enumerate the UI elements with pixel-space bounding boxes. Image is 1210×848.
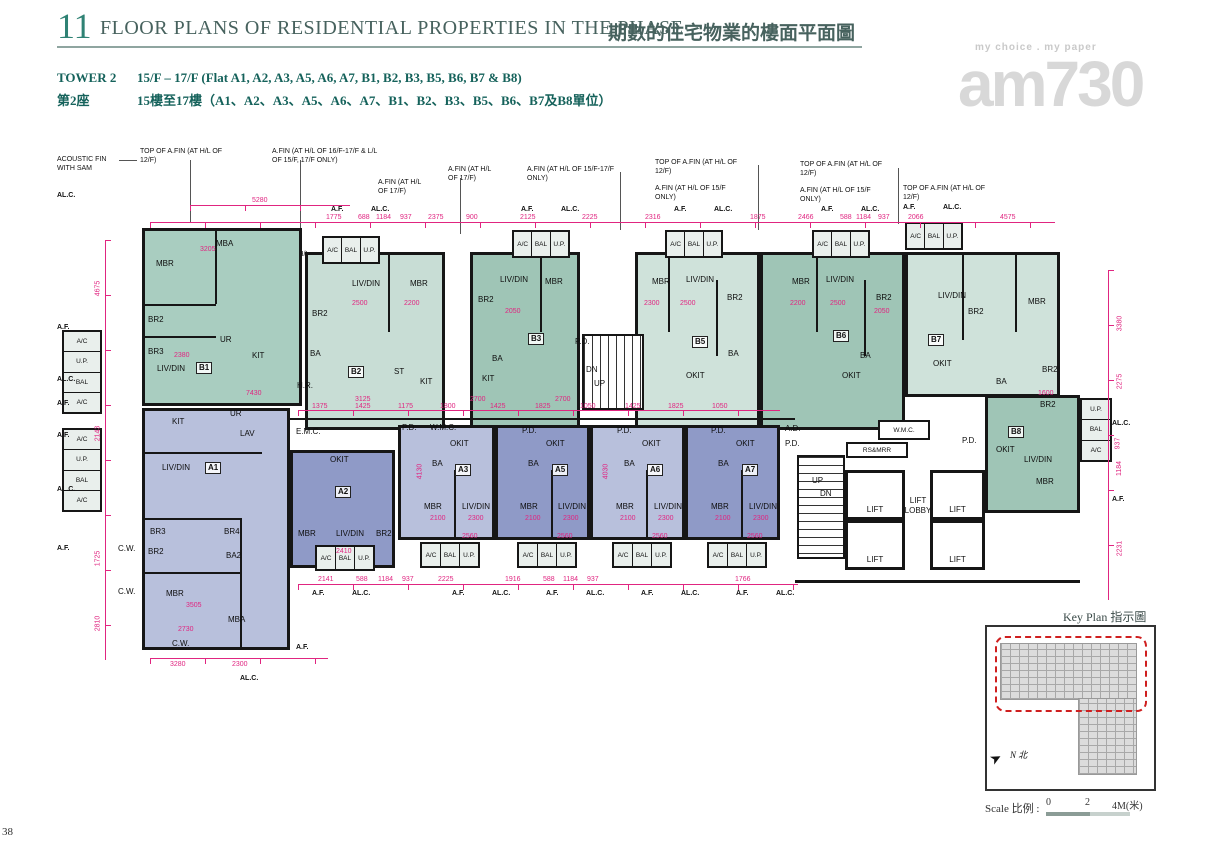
up-label: U.P.: [64, 450, 100, 470]
dim-label: 1766: [735, 576, 751, 583]
edge-label-alc: AL.C.: [352, 590, 370, 597]
tower-floors: 15/F – 17/F (Flat A1, A2, A3, A5, A6, A7…: [137, 70, 522, 86]
room-label-br3: BR3: [150, 528, 166, 536]
dim-label: 2300: [753, 515, 769, 522]
room-label-ba: BA: [492, 355, 503, 363]
edge-label-alc: AL.C.: [57, 192, 75, 199]
bal-label: BAL: [538, 544, 557, 566]
room-label-st: ST: [394, 368, 404, 376]
room-label-br4: BR4: [224, 528, 240, 536]
pod-b2-ac-bal-up: A/CBALU.P.: [322, 236, 380, 264]
dim-label: 2100: [715, 515, 731, 522]
room-label-livdin: LIV/DIN: [558, 503, 586, 511]
dim-label: 937: [878, 214, 890, 221]
room-label-pd: P.D.: [617, 427, 632, 435]
dim-label: 1184: [376, 214, 391, 221]
dim-label: 3380: [1116, 316, 1123, 332]
annotation-afin-17: A.FIN (AT H/L OF 17/F): [448, 165, 498, 183]
dim-label: 2125: [520, 214, 536, 221]
ac-label: A/C: [64, 332, 100, 352]
room-label-livdin: LIV/DIN: [749, 503, 777, 511]
wall-segment: [551, 470, 553, 538]
dim-label: 2316: [645, 214, 661, 221]
dim-line-bottom: [298, 584, 798, 590]
lift-label: LIFT: [867, 555, 883, 564]
stair-up-label: UP: [594, 380, 605, 388]
dim-label: 4675: [94, 281, 101, 297]
room-label-br2: BR2: [148, 548, 164, 556]
annotation-afin-1517: A.FIN (AT H/L OF 15/F-17/F ONLY): [527, 165, 622, 183]
dim-label: 588: [543, 576, 555, 583]
dim-label: 2050: [505, 308, 521, 315]
room-label-kit: KIT: [482, 375, 494, 383]
pod-b3-ac-bal-up: A/CBALU.P.: [512, 230, 570, 258]
page-title-chinese: 期數的住宅物業的樓面平面圖: [608, 18, 855, 45]
unit-badge-b2: B2: [348, 366, 364, 378]
pod-b5-ac-bal-up: A/CBALU.P.: [665, 230, 723, 258]
room-label-mbr: MBR: [410, 280, 428, 288]
room-label-kit: KIT: [420, 378, 432, 386]
dim-label: 1184: [378, 576, 393, 583]
unit-badge-a7: A7: [742, 464, 758, 476]
annotation-afin-17: A.FIN (AT H/L OF 17/F): [378, 178, 428, 196]
edge-label-af: A.F.: [674, 206, 686, 213]
annotation-top-afin: TOP OF A.FIN (AT H/L OF 12/F): [655, 158, 750, 176]
edge-label-alc: AL.C.: [586, 590, 604, 597]
room-label-mbr: MBR: [545, 278, 563, 286]
room-label-ba: BA: [996, 378, 1007, 386]
room-label-br2: BR2: [312, 310, 328, 318]
leader-line: [898, 168, 899, 224]
section-number: 11: [57, 5, 92, 47]
edge-label-alc: AL.C.: [714, 206, 732, 213]
wall-segment: [388, 252, 390, 332]
tower-floors-chinese: 15樓至17樓（A1、A2、A3、A5、A6、A7、B1、B2、B3、B5、B6…: [137, 90, 612, 109]
room-label-mbr: MBR: [1028, 298, 1046, 306]
dim-label: 2300: [658, 515, 674, 522]
edge-label-alc: AL.C.: [943, 204, 961, 211]
pod-a5-ac-bal-up: A/CBALU.P.: [517, 542, 577, 568]
edge-label-alc: AL.C.: [561, 206, 579, 213]
scale-tick-4: 4M(米): [1112, 797, 1143, 812]
dim-label: 937: [402, 576, 414, 583]
dim-label: 1184: [856, 214, 871, 221]
dim-label: 2375: [428, 214, 444, 221]
room-label-mbr: MBR: [520, 503, 538, 511]
dim-label: 3505: [186, 602, 202, 609]
dim-line-left: [105, 240, 111, 660]
dim-label: 3125: [355, 396, 371, 403]
room-label-br2: BR2: [376, 530, 392, 538]
lift-shaft: LIFT: [845, 470, 905, 520]
dim-label: 2231: [1116, 541, 1123, 557]
up-label: U.P.: [460, 544, 478, 566]
lift-label: LIFT: [867, 505, 883, 514]
dim-label: 588: [356, 576, 368, 583]
up-label: U.P.: [355, 547, 373, 569]
edge-label-af: A.F.: [57, 324, 69, 331]
room-label-okit: OKIT: [736, 440, 755, 448]
room-label-mbr: MBR: [652, 278, 670, 286]
dim-label: 2730: [178, 626, 194, 633]
dim-label: 2300: [232, 661, 248, 668]
edge-label-af: A.F.: [736, 590, 748, 597]
up-label: U.P.: [851, 232, 868, 256]
ac-label: A/C: [614, 544, 633, 566]
dim-label: 5280: [252, 197, 268, 204]
room-label-pd: P.D.: [575, 338, 590, 346]
unit-region-b1: [142, 228, 302, 406]
room-label-pd: P.D.: [785, 440, 800, 448]
edge-label-af: A.F.: [903, 204, 915, 211]
up-label: U.P.: [551, 232, 568, 256]
dim-label: 2066: [908, 214, 924, 221]
room-label-br3: BR3: [148, 348, 164, 356]
unit-badge-a2: A2: [335, 486, 351, 498]
dim-label: 937: [587, 576, 599, 583]
stair-dn-label: DN: [820, 490, 832, 498]
dim-line-corridor: [298, 410, 780, 416]
dim-label: 937: [400, 214, 412, 221]
dim-label: 2143: [94, 426, 101, 442]
room-label-livdin: LIV/DIN: [352, 280, 380, 288]
dim-label: 2100: [430, 515, 446, 522]
room-label-br2: BR2: [876, 294, 892, 302]
up-label: U.P.: [64, 352, 100, 372]
room-label-br2: BR2: [478, 296, 494, 304]
dim-line-top: [150, 222, 1055, 228]
dim-label: 2500: [352, 300, 368, 307]
wall-segment: [142, 304, 216, 306]
dim-label: 1184: [1116, 461, 1123, 476]
room-label-okit: OKIT: [933, 360, 952, 368]
bal-label: BAL: [532, 232, 550, 256]
room-label-mbr: MBR: [792, 278, 810, 286]
room-label-mba: MBA: [228, 616, 245, 624]
wall-segment: [290, 418, 795, 420]
room-label-br2: BR2: [968, 308, 984, 316]
dim-label: 1425: [355, 403, 371, 410]
dim-label: 1916: [505, 576, 521, 583]
bal-label: BAL: [1082, 420, 1110, 440]
room-label-ba: BA: [728, 350, 739, 358]
annotation-top-afin: TOP OF A.FIN (AT H/L OF 12/F): [903, 184, 998, 202]
tower-name-chinese: 第2座: [57, 90, 90, 109]
annotation-afin-1617: A.FIN (AT H/L OF 16/F-17/F & L/L OF 15/F…: [272, 147, 388, 165]
dim-label: 1725: [94, 551, 101, 567]
dim-label: 3280: [170, 661, 186, 668]
edge-label-alc: AL.C.: [57, 486, 75, 493]
room-label-ba: BA: [528, 460, 539, 468]
bal-label: BAL: [633, 544, 652, 566]
lift-shaft: LIFT: [930, 520, 985, 570]
unit-region-b7: [905, 252, 1060, 397]
wall-segment: [716, 280, 718, 356]
ac-label: A/C: [814, 232, 832, 256]
room-label-mbr: MBR: [424, 503, 442, 511]
page-title: FLOOR PLANS OF RESIDENTIAL PROPERTIES IN…: [100, 17, 683, 40]
room-label-lav: LAV: [240, 430, 255, 438]
dim-label: 2500: [830, 300, 846, 307]
room-label-okit: OKIT: [330, 456, 349, 464]
pod-a3-ac-bal-up: A/CBALU.P.: [420, 542, 480, 568]
header-rule: [57, 46, 862, 48]
room-label-livdin: LIV/DIN: [462, 503, 490, 511]
room-label-kit: KIT: [252, 352, 264, 360]
dim-label: 3205: [200, 246, 216, 253]
unit-region-b8: [985, 395, 1080, 513]
dim-label: 688: [358, 214, 370, 221]
dim-line-right: [1108, 270, 1114, 600]
dim-label: 2810: [94, 616, 101, 632]
room-label-livdin: LIV/DIN: [1024, 456, 1052, 464]
wall-segment: [668, 252, 670, 332]
dim-label: 1425: [625, 403, 641, 410]
lift-shaft: LIFT: [930, 470, 985, 520]
dim-label: 2050: [874, 308, 890, 315]
unit-badge-b1: B1: [196, 362, 212, 374]
room-label-ba2: BA2: [226, 552, 241, 560]
ac-label: A/C: [514, 232, 532, 256]
room-label-livdin: LIV/DIN: [654, 503, 682, 511]
wall-segment: [454, 470, 456, 538]
pod-a6-ac-bal-up: A/CBALU.P.: [612, 542, 672, 568]
unit-badge-b3: B3: [528, 333, 544, 345]
wall-segment: [240, 518, 242, 648]
dim-label: 2560: [462, 533, 478, 540]
unit-badge-a3: A3: [455, 464, 471, 476]
wall-segment: [795, 580, 1080, 583]
room-label-cw: C.W.: [172, 640, 189, 648]
dim-label: 1175: [398, 403, 413, 410]
room-label-mbr: MBR: [711, 503, 729, 511]
wmc-room: W.M.C.: [878, 420, 930, 440]
annotation-afin-15: A.FIN (AT H/L OF 15/F ONLY): [655, 184, 747, 202]
room-label-okit: OKIT: [996, 446, 1015, 454]
edge-label-af: A.F.: [296, 644, 308, 651]
dim-label: 2141: [318, 576, 334, 583]
bal-label: BAL: [342, 238, 360, 262]
bal-label: BAL: [441, 544, 460, 566]
dim-label: 2700: [470, 396, 486, 403]
dim-label: 1050: [580, 403, 596, 410]
room-label-br2: BR2: [1040, 401, 1056, 409]
dim-label: 2225: [438, 576, 454, 583]
room-label-pd: P.D.: [711, 427, 726, 435]
room-label-cw: C.W.: [118, 588, 135, 596]
wall-segment: [646, 470, 648, 538]
unit-badge-a1: A1: [205, 462, 221, 474]
dim-label: 2300: [468, 515, 484, 522]
lift-lobby-label: LIFT LOBBY: [900, 496, 936, 517]
edge-label-af: A.F.: [312, 590, 324, 597]
dim-label: 1184: [563, 576, 578, 583]
dim-label: 2225: [582, 214, 598, 221]
unit-region-a5: [495, 425, 590, 540]
dim-label: 900: [466, 214, 478, 221]
unit-region-a7: [685, 425, 780, 540]
room-label-mbr: MBR: [156, 260, 174, 268]
dim-label: 1825: [535, 403, 551, 410]
edge-label-alc: AL.C.: [1112, 420, 1130, 427]
unit-badge-b5: B5: [692, 336, 708, 348]
up-label: U.P.: [747, 544, 765, 566]
ac-label: A/C: [317, 547, 336, 569]
dim-label: 1375: [312, 403, 328, 410]
unit-badge-b6: B6: [833, 330, 849, 342]
edge-label-alc: AL.C.: [681, 590, 699, 597]
dim-label: 2410: [336, 548, 352, 555]
edge-label-alc: AL.C.: [57, 376, 75, 383]
keyplan-title: Key Plan 指示圖: [1063, 608, 1146, 625]
dim-label: 2700: [555, 396, 571, 403]
unit-badge-b8: B8: [1008, 426, 1024, 438]
dim-label: 2300: [563, 515, 579, 522]
room-label-livdin: LIV/DIN: [162, 464, 190, 472]
leader-line: [119, 160, 137, 161]
room-label-cw: C.W.: [118, 545, 135, 553]
room-label-br2: BR2: [727, 294, 743, 302]
wall-segment: [864, 280, 866, 356]
wall-segment: [540, 252, 542, 332]
room-label-kit: KIT: [172, 418, 184, 426]
up-label: U.P.: [557, 544, 575, 566]
room-label-mbr: MBR: [298, 530, 316, 538]
dim-label: 2560: [652, 533, 668, 540]
up-label: U.P.: [361, 238, 378, 262]
dim-label: 2100: [525, 515, 541, 522]
room-label-livdin: LIV/DIN: [500, 276, 528, 284]
wall-segment: [741, 470, 743, 538]
edge-label-af: A.F.: [57, 545, 69, 552]
watermark-logo: am730: [958, 52, 1142, 116]
room-label-mbr: MBR: [1036, 478, 1054, 486]
room-label-br2: BR2: [148, 316, 164, 324]
dim-label: 2380: [174, 352, 190, 359]
dim-label: 4030: [602, 464, 609, 480]
scale-label: Scale 比例 :: [985, 800, 1039, 816]
annotation-acoustic-fin: ACOUSTIC FIN WITH SAM: [57, 155, 119, 173]
stair-dn-label: DN: [586, 366, 598, 374]
room-label-livdin: LIV/DIN: [686, 276, 714, 284]
dim-label: 2560: [747, 533, 763, 540]
dim-label: 2560: [557, 533, 573, 540]
stair-region: [797, 455, 845, 559]
unit-badge-a5: A5: [552, 464, 568, 476]
unit-badge-a6: A6: [647, 464, 663, 476]
dim-label: 1775: [326, 214, 342, 221]
leader-line: [190, 160, 191, 222]
edge-label-af: A.F.: [57, 400, 69, 407]
dim-label: 588: [840, 214, 852, 221]
ac-label: A/C: [422, 544, 441, 566]
dim-label: 2300: [644, 300, 660, 307]
unit-badge-b7: B7: [928, 334, 944, 346]
dim-line: [190, 205, 350, 211]
room-label-ba: BA: [718, 460, 729, 468]
dim-label: 2200: [790, 300, 806, 307]
edge-label-alc: AL.C.: [240, 675, 258, 682]
dim-label: 937: [1114, 438, 1121, 450]
ac-label: A/C: [1082, 441, 1110, 460]
room-label-ba: BA: [310, 350, 321, 358]
room-label-livdin: LIV/DIN: [938, 292, 966, 300]
brochure-page: 11 FLOOR PLANS OF RESIDENTIAL PROPERTIES…: [0, 0, 1210, 848]
room-label-wmc: W.M.C.: [430, 424, 456, 432]
wall-segment: [1015, 252, 1017, 332]
room-label-ba: BA: [624, 460, 635, 468]
stair-up-label: UP: [812, 477, 823, 485]
keyplan-highlight-boundary: [995, 636, 1147, 712]
room-label-livdin: LIV/DIN: [336, 530, 364, 538]
edge-label-af: A.F.: [452, 590, 464, 597]
room-label-mbr: MBR: [166, 590, 184, 598]
lift-label: LIFT: [949, 505, 965, 514]
ac-label: A/C: [324, 238, 342, 262]
ac-label: A/C: [709, 544, 728, 566]
room-label-okit: OKIT: [546, 440, 565, 448]
edge-label-af: A.F.: [546, 590, 558, 597]
wall-segment: [142, 336, 216, 338]
scale-tick-2: 2: [1085, 797, 1090, 808]
dim-label: 1050: [712, 403, 728, 410]
edge-label-af: A.F.: [521, 206, 533, 213]
room-label-mbr: MBR: [616, 503, 634, 511]
edge-label-alc: AL.C.: [371, 206, 389, 213]
unit-region-a6: [590, 425, 685, 540]
wall-segment: [142, 452, 262, 454]
scale-tick-0: 0: [1046, 797, 1051, 808]
room-label-br2: BR2: [1042, 366, 1058, 374]
room-label-okit: OKIT: [450, 440, 469, 448]
dim-label: 2466: [798, 214, 814, 221]
lift-shaft: LIFT: [845, 520, 905, 570]
room-label-ba: BA: [432, 460, 443, 468]
up-label: U.P.: [704, 232, 721, 256]
edge-label-alc: AL.C.: [776, 590, 794, 597]
rsmrr-room: RS&MRR: [846, 442, 908, 458]
room-label-ba: BA: [860, 352, 871, 360]
room-label-okit: OKIT: [642, 440, 661, 448]
wall-segment: [816, 252, 818, 332]
annotation-top-afin: TOP OF A.FIN (AT H/L OF 12/F): [800, 160, 895, 178]
edge-label-af: A.F.: [641, 590, 653, 597]
wall-segment: [142, 518, 242, 520]
lift-label: LIFT: [949, 555, 965, 564]
dim-label: 4130: [416, 464, 423, 480]
room-label-hr: H.R.: [297, 382, 313, 390]
edge-label-af: A.F.: [57, 432, 69, 439]
ac-label: A/C: [519, 544, 538, 566]
room-label-mba: MBA: [216, 240, 233, 248]
dim-label: 2500: [680, 300, 696, 307]
room-label-ad: A.D.: [785, 425, 801, 433]
room-label-pd: P.D.: [402, 424, 417, 432]
dim-label: 1875: [750, 214, 766, 221]
dim-label: 1425: [490, 403, 506, 410]
unit-region-a3: [398, 425, 495, 540]
north-label: N 北: [1010, 748, 1027, 761]
up-label: U.P.: [1082, 400, 1110, 420]
tower-name: TOWER 2: [57, 70, 116, 86]
edge-label-alc: AL.C.: [492, 590, 510, 597]
wall-segment: [142, 572, 242, 574]
room-label-pd: P.D.: [522, 427, 537, 435]
dim-label: 1825: [668, 403, 684, 410]
edge-label-af: A.F.: [821, 206, 833, 213]
dim-label: 2200: [404, 300, 420, 307]
bal-label: BAL: [832, 232, 850, 256]
